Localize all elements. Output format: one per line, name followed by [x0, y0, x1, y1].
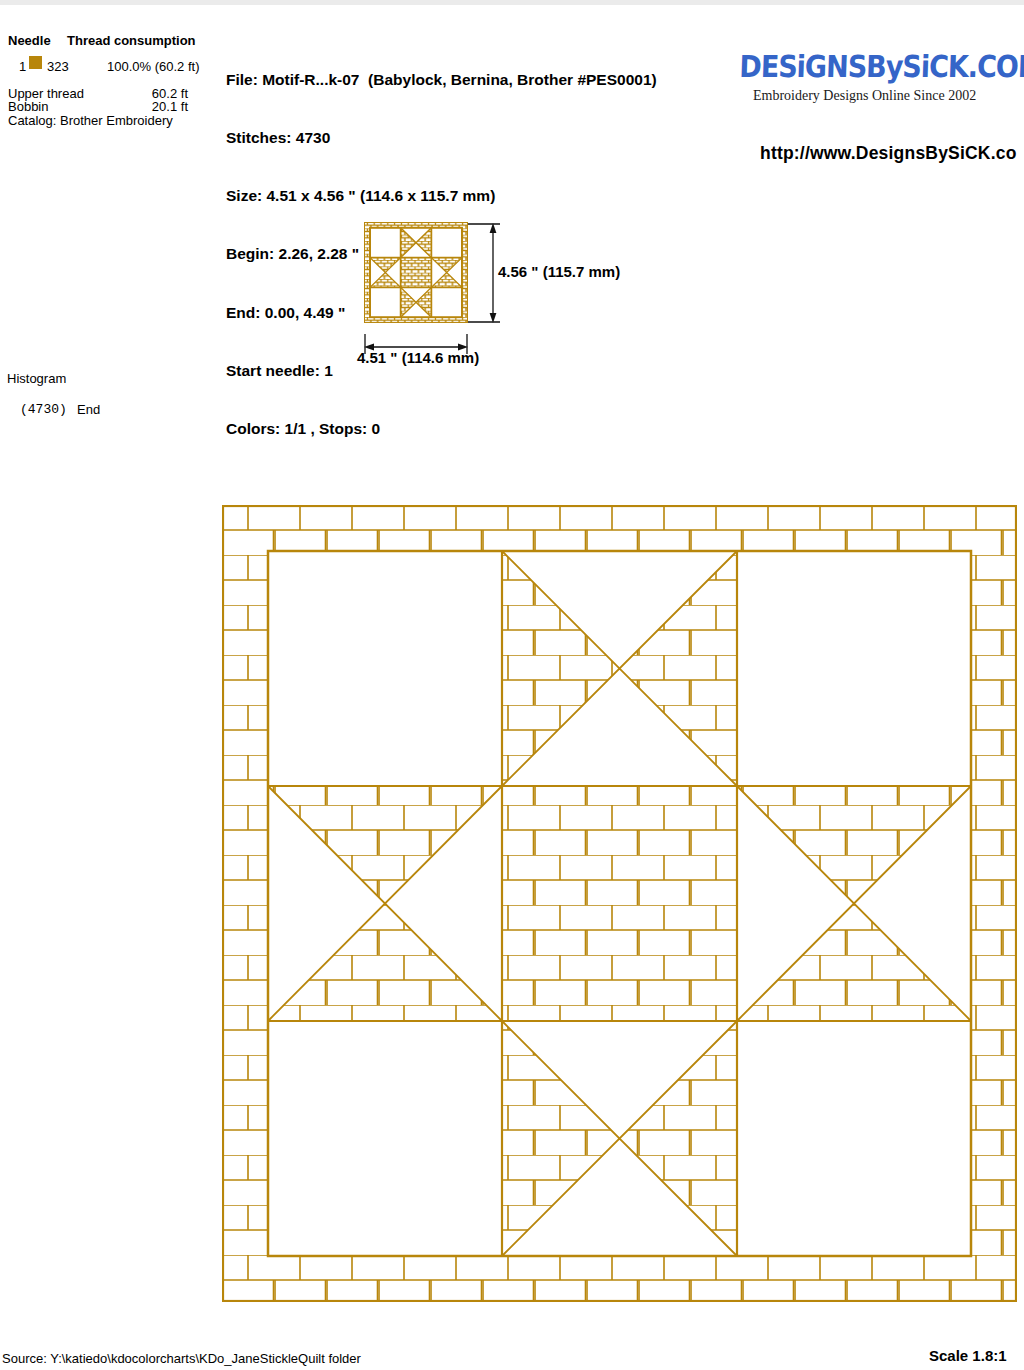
width-dimension-label: 4.51 " (114.6 mm) — [357, 349, 479, 366]
thread-code: 323 — [47, 60, 69, 73]
scale-label: Scale 1.8:1 — [929, 1347, 1007, 1364]
file-name-line: File: Motif-R...k-07 (Babylock, Bernina,… — [226, 70, 657, 89]
bobbin-label: Bobbin — [8, 100, 48, 113]
brand-tagline: Embroidery Designs Online Since 2002 — [753, 88, 976, 103]
thread-consumption-header: Thread consumption — [67, 34, 196, 47]
height-dimension-label: 4.56 " (115.7 mm) — [498, 263, 620, 280]
design-sheet: Needle Thread consumption 1 323 100.0% (… — [0, 0, 1024, 1370]
size-line: Size: 4.51 x 4.56 " (114.6 x 115.7 mm) — [226, 186, 657, 205]
needle-number: 1 — [19, 60, 26, 73]
thread-percent: 100.0% (60.2 ft) — [107, 60, 200, 73]
bobbin-value: 20.1 ft — [140, 100, 188, 113]
design-preview-large — [222, 505, 1017, 1302]
histogram-title: Histogram — [7, 372, 66, 385]
histogram-end-label: End — [77, 403, 100, 416]
brand-logo: DESiGNSBySiCK.COM — [739, 50, 1024, 84]
source-path: Source: Y:\katiedo\kdocolorcharts\KDo_Ja… — [2, 1352, 361, 1365]
page-edge — [0, 0, 1024, 5]
colors-line: Colors: 1/1 , Stops: 0 — [226, 419, 657, 438]
histogram-count: (4730) — [20, 403, 67, 416]
thread-color-swatch — [29, 56, 42, 69]
brand-url: http://www.DesignsBySiCK.co — [760, 143, 1017, 164]
catalog-line: Catalog: Brother Embroidery — [8, 114, 173, 127]
stitches-line: Stitches: 4730 — [226, 128, 657, 147]
needle-header-label: Needle — [8, 34, 51, 47]
